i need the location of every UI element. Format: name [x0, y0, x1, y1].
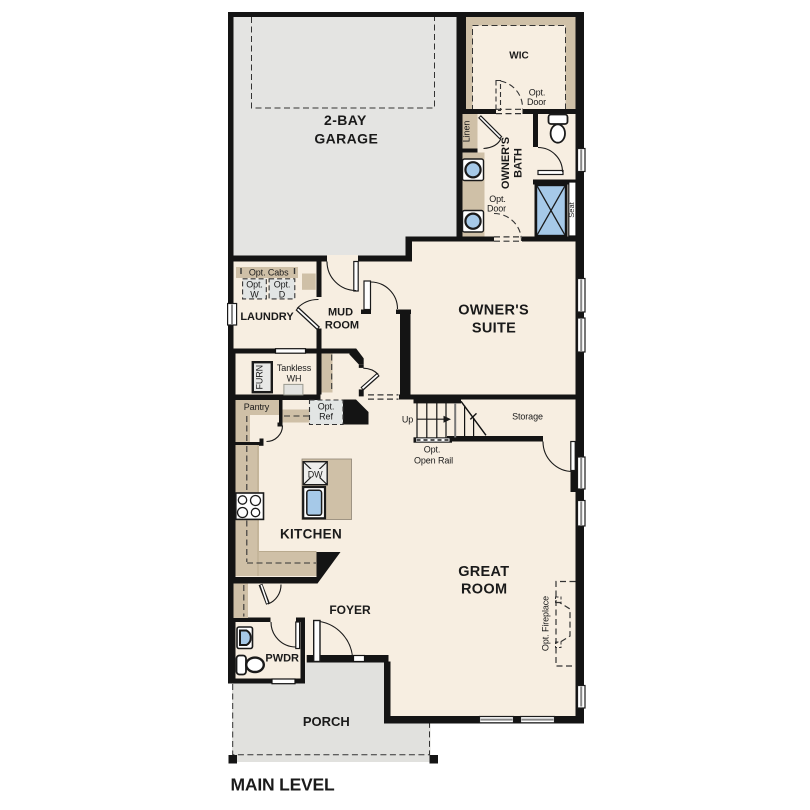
svg-text:Up: Up — [402, 415, 413, 425]
svg-text:OWNER'S: OWNER'S — [458, 303, 529, 319]
svg-text:PWDR: PWDR — [265, 653, 299, 665]
svg-text:Ref: Ref — [319, 412, 333, 422]
svg-text:WIC: WIC — [509, 51, 528, 62]
svg-text:ROOM: ROOM — [461, 582, 507, 598]
svg-text:Linen: Linen — [462, 121, 472, 143]
svg-text:W: W — [250, 289, 259, 299]
svg-text:PORCH: PORCH — [303, 714, 350, 729]
svg-text:MAIN LEVEL: MAIN LEVEL — [231, 775, 335, 795]
svg-text:Opt.: Opt. — [529, 88, 546, 98]
svg-text:Opt. Cabs: Opt. Cabs — [249, 267, 289, 277]
svg-text:Opt.: Opt. — [274, 279, 291, 289]
svg-text:Opt. Fireplace: Opt. Fireplace — [541, 596, 551, 651]
svg-text:GREAT: GREAT — [458, 564, 509, 580]
svg-text:Door: Door — [527, 97, 546, 107]
svg-text:Seat: Seat — [567, 201, 576, 217]
svg-text:MUD: MUD — [328, 307, 353, 319]
svg-text:Pantry: Pantry — [244, 402, 270, 412]
svg-text:GARAGE: GARAGE — [314, 131, 378, 147]
svg-text:FURN: FURN — [254, 365, 264, 390]
svg-text:D: D — [279, 289, 286, 299]
svg-text:Storage: Storage — [512, 412, 543, 422]
svg-text:SUITE: SUITE — [472, 320, 516, 336]
svg-text:Tankless: Tankless — [277, 363, 312, 373]
svg-text:LAUNDRY: LAUNDRY — [240, 311, 294, 323]
svg-text:Opt.: Opt. — [489, 194, 506, 204]
svg-text:Door: Door — [487, 204, 506, 214]
svg-text:Open Rail: Open Rail — [414, 456, 453, 466]
svg-text:BATH: BATH — [513, 148, 525, 178]
svg-text:Opt.: Opt. — [246, 279, 263, 289]
svg-text:Opt.: Opt. — [424, 445, 441, 455]
svg-text:Opt.: Opt. — [318, 402, 335, 412]
svg-text:WH: WH — [287, 374, 302, 384]
svg-text:FOYER: FOYER — [329, 603, 371, 617]
svg-text:2-BAY: 2-BAY — [324, 112, 367, 128]
svg-text:DW: DW — [308, 470, 323, 480]
svg-text:KITCHEN: KITCHEN — [280, 527, 342, 542]
svg-text:ROOM: ROOM — [325, 320, 359, 332]
svg-text:OWNER'S: OWNER'S — [500, 137, 512, 189]
